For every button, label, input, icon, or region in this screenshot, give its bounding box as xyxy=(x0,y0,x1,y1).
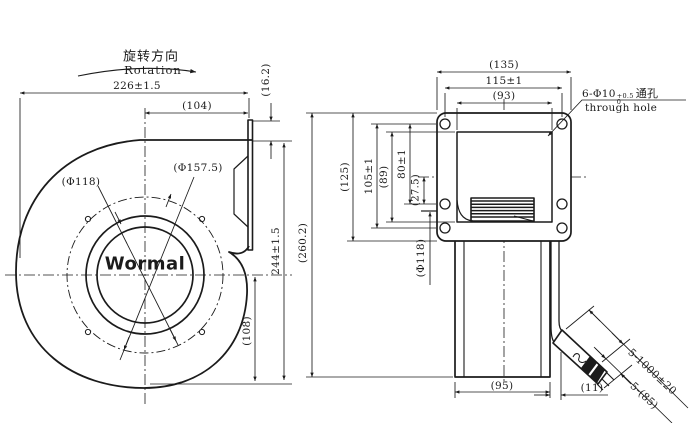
blower-technical-drawing: 旋转方向 Rotation 226±1.5 (104) (16.2) 244±1… xyxy=(0,0,692,423)
dim-cable-offset: (11) xyxy=(581,382,604,394)
dim-flange-height: (125) xyxy=(339,162,351,192)
dia-inlet-label-right: (Φ118) xyxy=(415,239,427,278)
dim-hole-span-v: 105±1 xyxy=(363,157,375,194)
right-view xyxy=(421,113,614,390)
cable-conduit xyxy=(551,241,563,342)
dim-flange-width-right: (135) xyxy=(489,59,519,71)
dim-hole-span-h: 115±1 xyxy=(485,75,522,87)
dim-hole-span-upper: 80±1 xyxy=(396,149,408,179)
rotation-label-en: Rotation xyxy=(124,63,182,77)
outlet-duct-profile xyxy=(234,156,248,227)
dim-flange-offset: (16.2) xyxy=(260,63,272,96)
dim-total-width: 226±1.5 xyxy=(113,80,161,92)
dim-total-height: 244±1.5 xyxy=(270,227,282,275)
housing-body xyxy=(455,241,550,377)
hole-note-main: 6-Φ10 xyxy=(582,88,616,100)
dim-total-height-right: (260.2) xyxy=(297,223,309,263)
brand-logo: Wormal xyxy=(105,254,186,275)
hole-note-line2: through hole xyxy=(585,102,657,114)
dia-inlet-label-left: (Φ118) xyxy=(62,176,101,188)
hole-note-cn: 通孔 xyxy=(636,87,659,100)
housing-wall-lines xyxy=(464,241,541,377)
dim-center-to-bottom: (108) xyxy=(241,316,253,346)
dim-flange-width-left: (104) xyxy=(182,100,212,112)
dia-bolt-circle-label: (Φ157.5) xyxy=(173,162,222,174)
dim-outlet-width: (93) xyxy=(493,90,516,102)
dim-center-to-hole: (27.5) xyxy=(411,174,422,206)
rotation-label-cn: 旋转方向 xyxy=(123,46,179,65)
drawing-linework xyxy=(0,0,692,423)
dim-body-width: (95) xyxy=(491,380,514,392)
dim-outlet-height: (89) xyxy=(378,166,390,189)
